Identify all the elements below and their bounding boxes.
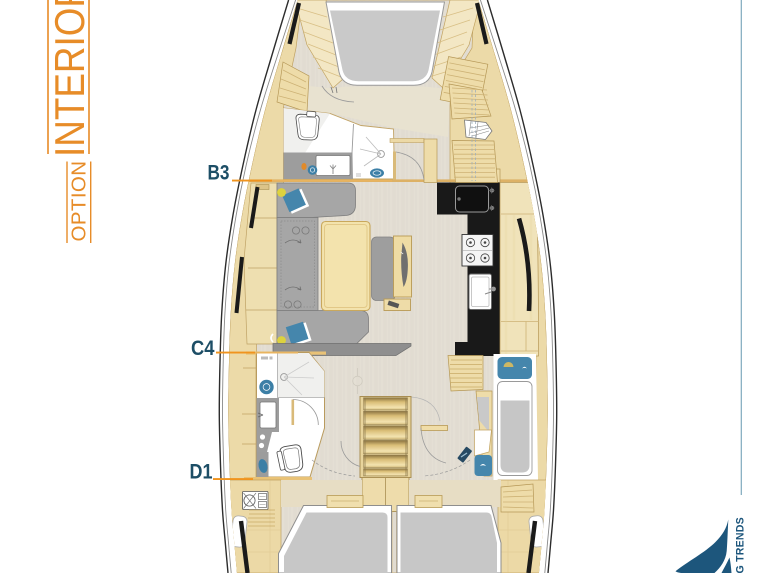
svg-text:OPTION: OPTION <box>68 161 91 242</box>
svg-text:C4: C4 <box>191 337 215 360</box>
svg-text:D1: D1 <box>190 461 213 484</box>
svg-text:B3: B3 <box>208 162 230 185</box>
svg-text:G TRENDS: G TRENDS <box>735 517 747 573</box>
svg-text:INTERIOR: INTERIOR <box>46 0 93 157</box>
